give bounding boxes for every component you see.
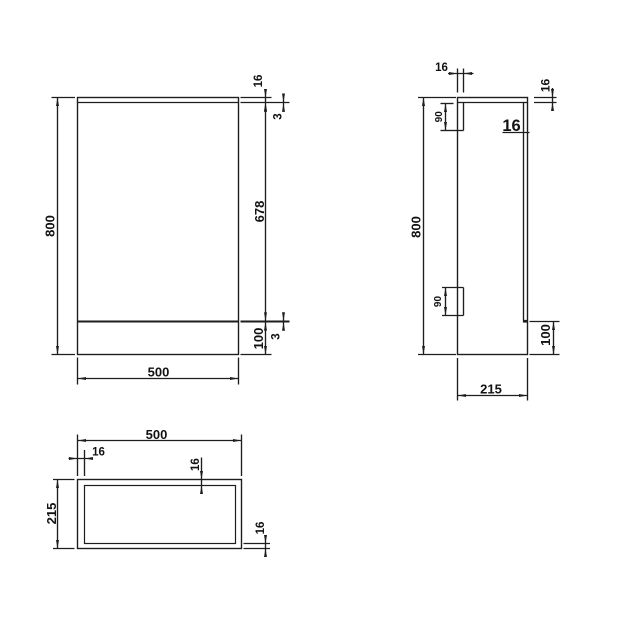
svg-text:16: 16 bbox=[539, 79, 553, 93]
svg-text:500: 500 bbox=[148, 365, 170, 380]
svg-text:16: 16 bbox=[190, 458, 202, 471]
svg-text:16: 16 bbox=[92, 446, 105, 458]
svg-text:800: 800 bbox=[409, 216, 424, 238]
svg-text:90: 90 bbox=[433, 296, 444, 308]
svg-text:100: 100 bbox=[538, 324, 553, 346]
svg-text:100: 100 bbox=[251, 328, 266, 350]
svg-text:678: 678 bbox=[252, 201, 267, 223]
svg-text:215: 215 bbox=[480, 382, 502, 397]
svg-text:215: 215 bbox=[44, 503, 59, 525]
svg-text:800: 800 bbox=[43, 215, 58, 237]
svg-text:90: 90 bbox=[434, 111, 445, 123]
svg-text:3: 3 bbox=[271, 333, 283, 339]
svg-text:16: 16 bbox=[435, 62, 448, 74]
svg-text:16: 16 bbox=[255, 522, 267, 535]
svg-text:16: 16 bbox=[253, 75, 265, 88]
svg-text:500: 500 bbox=[146, 427, 168, 442]
svg-text:3: 3 bbox=[273, 113, 285, 119]
